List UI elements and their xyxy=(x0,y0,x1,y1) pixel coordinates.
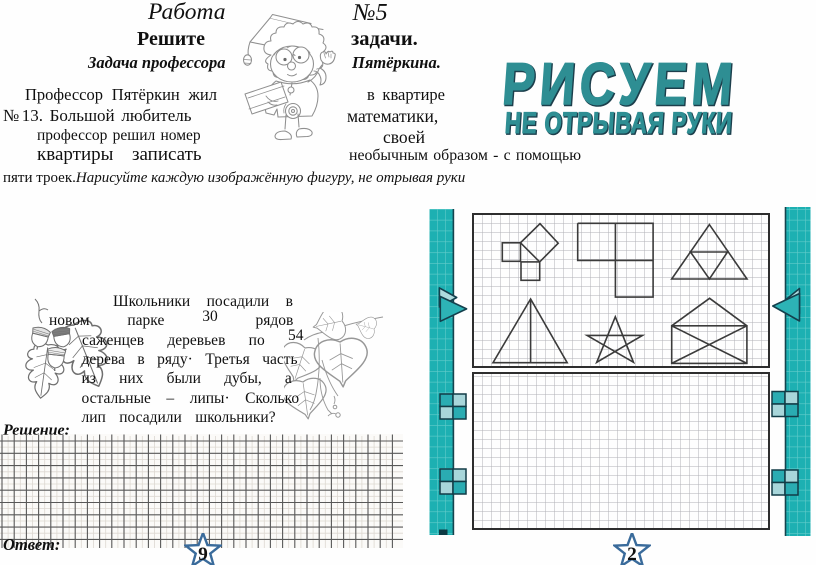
svg-text:9: 9 xyxy=(198,544,208,565)
